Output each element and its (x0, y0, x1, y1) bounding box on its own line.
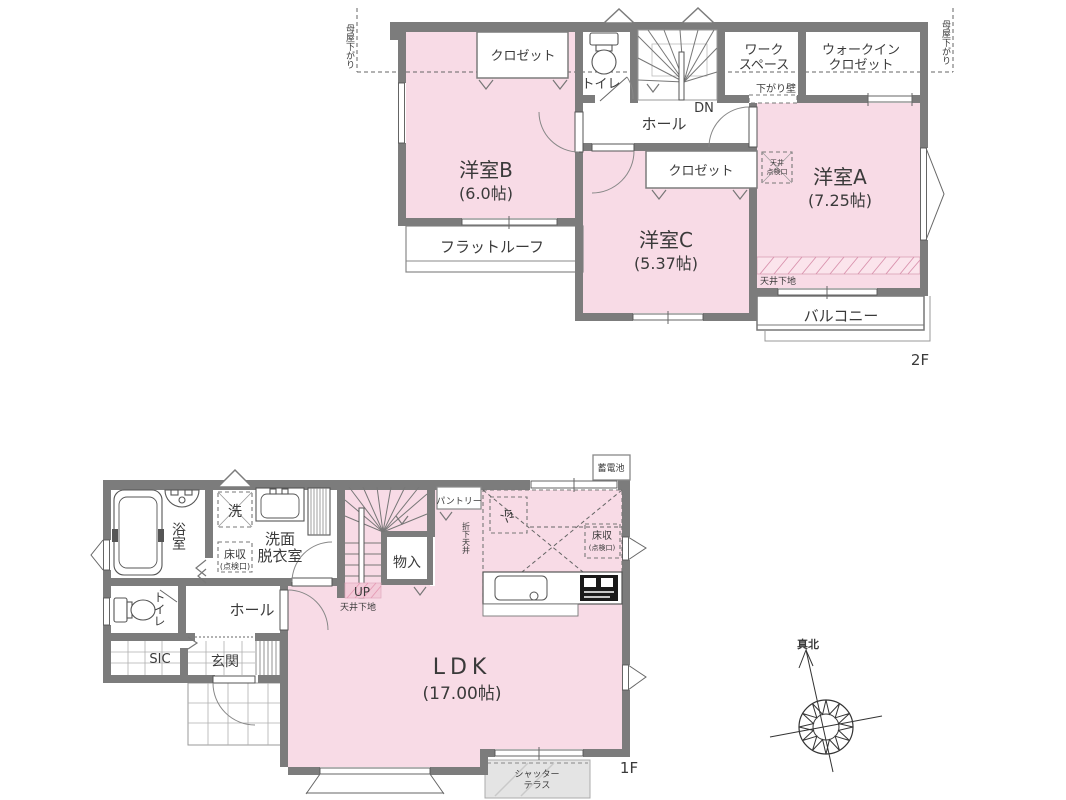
wic-label-1: ウォークイン (822, 43, 900, 58)
mono-ire-label: 物入 (393, 555, 421, 571)
stairs-down-icon (638, 30, 717, 100)
toilet-2f-label: トイレ (581, 77, 620, 92)
closet-b-label: クロゼット (490, 49, 555, 64)
yuka-shu-label-1: 床収 (224, 547, 246, 561)
bathtub-icon (112, 490, 164, 575)
floor1-label: 1F (620, 759, 638, 777)
floor-plan-2f: 洋室B (6.0帖) 洋室A (7.25帖) 洋室C (5.37帖) クロゼット… (344, 8, 953, 369)
sagari-kabe-label: 下がり壁 (756, 82, 796, 95)
workspace-label-1: ワーク (744, 43, 783, 58)
shutter-terrace-label-1: シャッター (514, 769, 559, 780)
washroom-label-2: 脱衣室 (257, 547, 302, 565)
sink-icon (256, 488, 304, 521)
flat-roof-label: フラットルーフ (440, 238, 544, 256)
room-a-size: (7.25帖) (808, 191, 872, 210)
toilet-1f-label: トイレ (152, 591, 166, 627)
ldk-size: (17.00帖) (423, 684, 502, 704)
sic-label: SIC (149, 652, 170, 667)
wic-label-2: クロゼット (828, 58, 893, 73)
ldk-lower-fill (288, 749, 488, 767)
dn-label: DN (694, 101, 714, 116)
room-b-name: 洋室B (459, 158, 513, 182)
tenjo-tenkenko-label-2: 点検口 (767, 167, 788, 176)
room-a-name: 洋室A (813, 165, 867, 189)
yuka-shu-kitchen-label-2: (点検口) (589, 543, 616, 552)
linen-cabinet-icon (308, 488, 330, 535)
genkan-label: 玄関 (211, 653, 239, 670)
sagari-kabe-segment (749, 95, 797, 103)
true-north-label: 真北 (797, 637, 819, 651)
washer-label: 洗 (228, 504, 242, 520)
floor-plan-page: 洋室B (6.0帖) 洋室A (7.25帖) 洋室C (5.37帖) クロゼット… (0, 0, 1066, 800)
tenjo-shitaji-1f-label: 天井下地 (340, 601, 376, 613)
workspace-label-2: スペース (739, 58, 789, 73)
closet-c-label: クロゼット (668, 164, 733, 179)
roof-vent-icon-1f (218, 470, 252, 487)
pantry-label: パントリー (436, 496, 481, 507)
tenjo-shitaji-2f-label: 天井下地 (760, 275, 796, 287)
toilet-icon-2f (590, 33, 618, 74)
toilet-icon-1f (114, 590, 177, 622)
moya-sagari-right-label: 母屋下がり (940, 20, 951, 65)
room-b-size: (6.0帖) (459, 184, 513, 203)
ldk-name: LDK (433, 655, 492, 680)
hall-2f-label: ホール (641, 115, 686, 133)
porch-tiles (188, 683, 285, 745)
yuka-shu-kitchen-label-1: 床収 (592, 529, 612, 542)
room-c-name: 洋室C (639, 228, 693, 252)
ceiling-hatch-2f (757, 257, 920, 274)
roof-vent-icons-2f (604, 8, 714, 23)
stove-icon (580, 575, 618, 601)
shutter-terrace-label-2: テラス (524, 780, 551, 791)
bath-label: 浴室 (170, 522, 186, 550)
compass-icon: 真北 (770, 637, 882, 772)
tenjo-tenkenko-label-1: 天井 (770, 158, 784, 167)
washroom-label-1: 洗面 (265, 530, 295, 548)
hall-1f-label: ホール (229, 601, 274, 619)
floor-plan-canvas: 洋室B (6.0帖) 洋室A (7.25帖) 洋室C (5.37帖) クロゼット… (0, 0, 1066, 800)
up-label: UP (354, 585, 370, 599)
moya-sagari-left-label: 母屋下がり (344, 24, 355, 69)
balcony-label: バルコニー (804, 307, 879, 325)
room-c-size: (5.37帖) (634, 254, 698, 273)
shower-counter-icon (165, 490, 199, 507)
floor-plan-1f: 浴室 洗 洗面 脱衣室 床収 (点検口) トイレ ホール SIC 玄関 UP 天… (91, 455, 646, 798)
yuka-shu-label-2: (点検口) (220, 561, 250, 571)
battery-label: 蓄電池 (597, 462, 624, 474)
orishita-tenjo-label: 折下天井 (462, 521, 471, 555)
floor2-label: 2F (911, 351, 929, 369)
